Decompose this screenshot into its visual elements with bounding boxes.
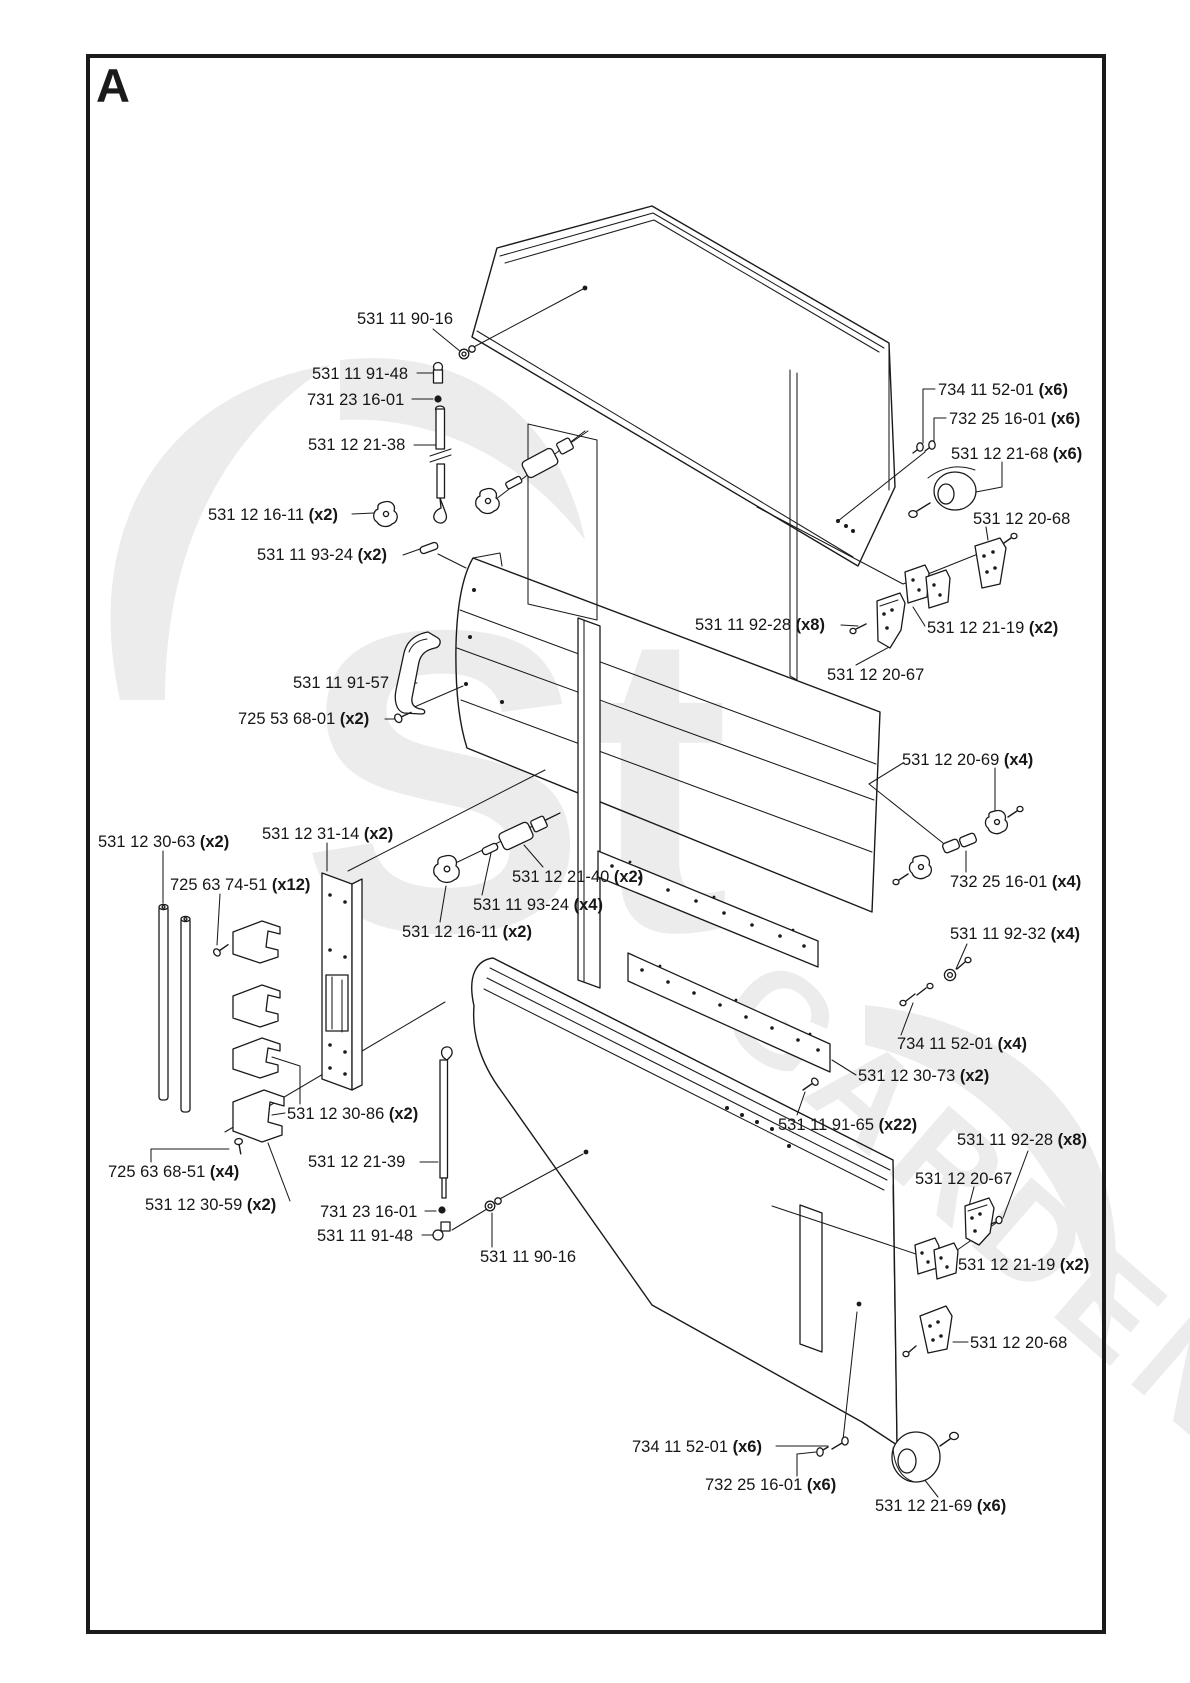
part-label: 725 53 68-01 (x2) (238, 711, 369, 728)
part-label: 531 12 21-19 (x2) (958, 1257, 1089, 1274)
part-label: 531 12 31-14 (x2) (262, 826, 393, 843)
part-label: 734 11 52-01 (x4) (897, 1036, 1027, 1053)
part-label: 531 12 21-39 (308, 1154, 405, 1171)
part-label: 732 25 16-01 (x6) (705, 1477, 836, 1494)
part-label: 531 12 20-68 (973, 511, 1070, 528)
part-label: 731 23 16-01 (320, 1204, 417, 1221)
part-label: 734 11 52-01 (x6) (632, 1439, 762, 1456)
part-label: 531 12 21-40 (x2) (512, 869, 643, 886)
part-label: 531 11 93-24 (x2) (257, 547, 387, 564)
page-border (86, 54, 1106, 1634)
part-label: 731 23 16-01 (307, 392, 404, 409)
part-label: 732 25 16-01 (x4) (950, 874, 1081, 891)
part-label: 734 11 52-01 (x6) (938, 382, 1068, 399)
part-label: 531 11 92-28 (x8) (957, 1132, 1087, 1149)
part-label: 531 12 20-68 (970, 1335, 1067, 1352)
part-label: 725 63 68-51 (x4) (108, 1164, 239, 1181)
part-label: 531 12 20-69 (x4) (902, 752, 1033, 769)
part-label: 531 12 21-38 (308, 437, 405, 454)
part-label: 531 12 21-68 (x6) (951, 446, 1082, 463)
part-label: 531 12 30-86 (x2) (287, 1106, 418, 1123)
part-label: 531 12 30-73 (x2) (858, 1068, 989, 1085)
part-label: 531 12 20-67 (827, 667, 924, 684)
part-label: 732 25 16-01 (x6) (949, 411, 1080, 428)
part-label: 531 12 21-19 (x2) (927, 620, 1058, 637)
part-label: 531 12 16-11 (x2) (208, 507, 338, 524)
figure-label: A (96, 58, 130, 113)
part-label: 725 63 74-51 (x12) (170, 877, 310, 894)
part-label: 531 12 20-67 (915, 1171, 1012, 1188)
part-label: 531 11 90-16 (480, 1249, 576, 1266)
part-label: 531 12 30-59 (x2) (145, 1197, 276, 1214)
part-label: 531 11 91-57 (293, 675, 389, 692)
part-label: 531 11 92-28 (x8) (695, 617, 825, 634)
part-label: 531 11 90-16 (357, 311, 453, 328)
part-label: 531 11 91-48 (317, 1228, 413, 1245)
part-label: 531 12 16-11 (x2) (402, 924, 532, 941)
parts-diagram-page: St GARDEN (0, 0, 1190, 1683)
part-label: 531 11 91-65 (x22) (778, 1117, 917, 1134)
part-label: 531 12 30-63 (x2) (98, 834, 229, 851)
part-label: 531 11 91-48 (312, 366, 408, 383)
part-label: 531 11 92-32 (x4) (950, 926, 1080, 943)
part-label: 531 12 21-69 (x6) (875, 1498, 1006, 1515)
part-label: 531 11 93-24 (x4) (473, 897, 603, 914)
